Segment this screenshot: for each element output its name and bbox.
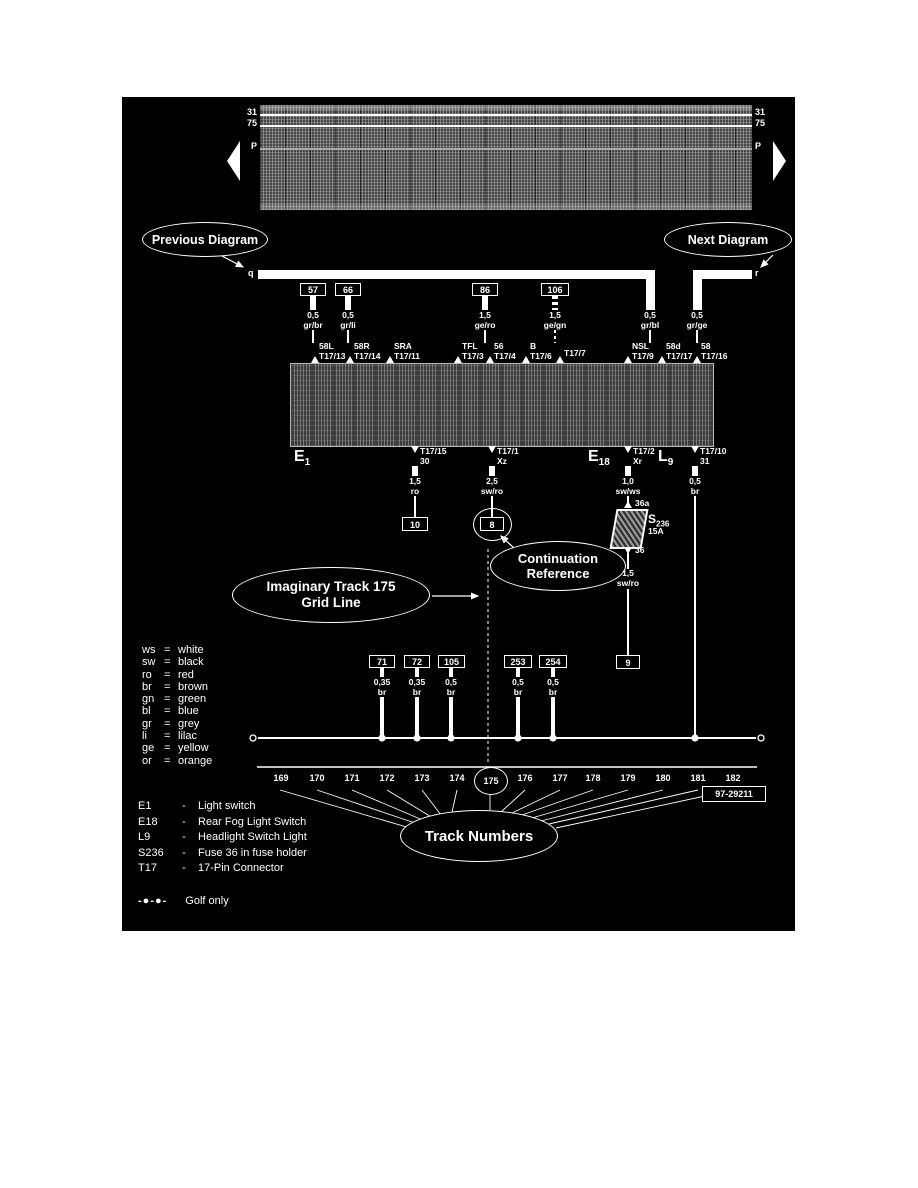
pin-arrow-icon [624, 356, 632, 363]
legend-row: ge=yellow [142, 742, 212, 754]
wire-color: gr/bl [628, 321, 672, 331]
pin-arrow-icon [488, 446, 496, 453]
legend-row: T17-17-Pin Connector [138, 861, 307, 877]
pin-label: 58RT17/14 [354, 342, 380, 361]
bus-right-end-letter: r [755, 268, 759, 278]
legend-row: sw=black [142, 656, 212, 668]
continuation-ref-box: 8 [480, 517, 504, 531]
continuation-ref-box: 254 [539, 655, 567, 668]
pin-arrow-icon [386, 356, 394, 363]
callout-imaginary-track: Imaginary Track 175Grid Line [232, 567, 430, 623]
wire-stub [415, 668, 419, 677]
track-number: 177 [547, 773, 573, 784]
legend-row: ro=red [142, 669, 212, 681]
wire-label: 0,5gr/li [326, 311, 370, 330]
wire-label: 0,5gr/bl [628, 311, 672, 330]
wire-to-ground [415, 697, 419, 738]
pin-label: 58dT17/17 [666, 342, 692, 361]
bus-bar-right-drop [693, 270, 702, 310]
band-right-label-31: 31 [755, 107, 771, 118]
legend-row: ws=white [142, 644, 212, 656]
wire-stub [625, 466, 631, 476]
wire-label: 0,5gr/ge [675, 311, 719, 330]
track-number-175-circled: 175 [474, 767, 508, 795]
next-diagram-arrow [761, 255, 773, 267]
continuation-ref-box: 10 [402, 517, 428, 531]
component-label-l9: L9 [658, 449, 673, 471]
wiring-diagram-panel: 31 75 P 31 75 P q r 57 0,5gr/br 66 0,5gr… [122, 97, 795, 931]
wire-lead [414, 496, 416, 517]
pin-label: T17/1031 [700, 447, 726, 466]
wire-to-ground [551, 697, 555, 738]
wire-stub [380, 668, 384, 677]
previous-diagram-arrow [222, 256, 243, 267]
wire-lead [627, 589, 629, 655]
wire-stub [310, 296, 316, 310]
track-number: 174 [444, 773, 470, 784]
track-number: 176 [512, 773, 538, 784]
pin-label: 58T17/16 [701, 342, 727, 361]
callout-track-numbers: Track Numbers [400, 810, 558, 862]
wire-color: ge/gn [533, 321, 577, 331]
legend-row: S236-Fuse 36 in fuse holder [138, 846, 307, 862]
ground-rail [250, 735, 764, 741]
continuation-ref-box: 9 [616, 655, 640, 669]
pin-arrow-icon [346, 356, 354, 363]
track-number: 181 [685, 773, 711, 784]
wire-label: 1,5ge/gn [533, 311, 577, 330]
wire-color: ge/ro [463, 321, 507, 331]
wire-label: 1,5ro [393, 477, 437, 496]
track-number: 169 [268, 773, 294, 784]
wire-to-ground [516, 697, 520, 738]
document-number-box: 97-29211 [702, 786, 766, 802]
track-number: 182 [720, 773, 746, 784]
wire-stub-golf-only [552, 296, 558, 310]
fuse-pin-top-label: 36a [635, 499, 649, 508]
wire-lead [696, 330, 698, 343]
wire-label: 2,5sw/ro [470, 477, 514, 496]
band-wire-75 [260, 125, 752, 127]
pin-label: T17/1530 [420, 447, 446, 466]
wire-color-legend: ws=white sw=black ro=red br=brown gn=gre… [142, 644, 212, 767]
pin-label: SRAT17/11 [394, 342, 420, 361]
legend-row: L9-Headlight Switch Light [138, 830, 307, 846]
pin-arrow-icon [486, 356, 494, 363]
wire-color: gr/ge [675, 321, 719, 331]
wire-lead-golf-only [554, 330, 556, 343]
pin-arrow-icon [522, 356, 530, 363]
band-strip-top [260, 105, 752, 110]
band-left-label-p: P [241, 141, 257, 152]
fuse-s236-symbol [609, 509, 648, 549]
fuse-rating: 15A [648, 527, 664, 536]
wire-stub [692, 466, 698, 476]
callout-previous-diagram: Previous Diagram [142, 222, 268, 257]
wire-lead [627, 553, 629, 569]
pin-label: NSLT17/9 [632, 342, 654, 361]
legend-row: gr=grey [142, 718, 212, 730]
pin-arrow-icon [454, 356, 462, 363]
ground-connection-dots [378, 734, 698, 741]
band-left-label-75: 75 [241, 118, 257, 129]
pin-label: T17/1Xz [497, 447, 519, 466]
wire-label: 1,5sw/ro [606, 569, 650, 588]
legend-row: li=lilac [142, 730, 212, 742]
track-number: 171 [339, 773, 365, 784]
track-number: 170 [304, 773, 330, 784]
legend-row: br=brown [142, 681, 212, 693]
pin-arrow-icon [311, 356, 319, 363]
continuation-ref-box: 106 [541, 283, 569, 296]
track-number: 178 [580, 773, 606, 784]
band-left-label-31: 31 [241, 107, 257, 118]
wire-stub [412, 466, 418, 476]
continuation-ref-box: 105 [438, 655, 465, 668]
track-number: 180 [650, 773, 676, 784]
legend-row: or=orange [142, 755, 212, 767]
legend-row: bl=blue [142, 705, 212, 717]
wire-label: 1,0sw/ws [606, 477, 650, 496]
band-right-label-p: P [755, 141, 771, 152]
continuation-ref-box: 253 [504, 655, 532, 668]
band-strip-bottom [260, 204, 752, 210]
continuation-ref-box: 66 [335, 283, 361, 296]
wire-stub [551, 668, 555, 677]
component-label-e18: E18 [588, 449, 610, 471]
pin-arrow-icon [556, 356, 564, 363]
diagram-overview-band [260, 105, 752, 210]
wire-stub [345, 296, 351, 310]
wire-stub [482, 296, 488, 310]
wire-stub [489, 466, 495, 476]
band-wire-31 [260, 114, 752, 116]
pin-label: 58LT17/13 [319, 342, 345, 361]
light-switch-block [290, 363, 714, 447]
wire-label: 1,5ge/ro [463, 311, 507, 330]
pin-arrow-icon [658, 356, 666, 363]
track-number: 179 [615, 773, 641, 784]
continuation-ref-box: 72 [404, 655, 430, 668]
pin-label: TFLT17/3 [462, 342, 484, 361]
track-number: 172 [374, 773, 400, 784]
legend-row: E1-Light switch [138, 799, 307, 815]
pin-label: T17/2Xr [633, 447, 655, 466]
component-label-e1: E1 [294, 449, 310, 471]
legend-row: E18-Rear Fog Light Switch [138, 815, 307, 831]
bus-bar-left [258, 270, 655, 279]
pin-label: BT17/6 [530, 342, 552, 361]
bus-left-end-letter: q [248, 268, 254, 278]
wire-stub [516, 668, 520, 677]
golf-only-dash-dot-swatch: -●-●- [138, 895, 167, 908]
band-wire-p [260, 148, 752, 150]
wire-to-ground [380, 697, 384, 738]
legend-row: gn=green [142, 693, 212, 705]
scanned-manual-page: 31 75 P 31 75 P q r 57 0,5gr/br 66 0,5gr… [0, 0, 918, 1188]
golf-only-label: Golf only [185, 895, 228, 908]
pin-label: 56T17/4 [494, 342, 516, 361]
component-legend: E1-Light switch E18-Rear Fog Light Switc… [138, 799, 307, 877]
wire-label: 0,5br [429, 678, 473, 697]
callout-next-diagram: Next Diagram [664, 222, 792, 257]
golf-only-note: -●-●- Golf only [138, 895, 229, 908]
next-page-arrow-icon [773, 141, 786, 181]
pin-arrow-icon [691, 446, 699, 453]
continuation-ref-box: 57 [300, 283, 326, 296]
pin-arrow-icon [411, 446, 419, 453]
wire-to-ground [449, 697, 453, 738]
wire-stub [449, 668, 453, 677]
band-right-label-75: 75 [755, 118, 771, 129]
wire-lead-to-ground [694, 496, 696, 737]
wire-label: 0,5br [673, 477, 717, 496]
continuation-ref-box: 71 [369, 655, 395, 668]
continuation-ref-box: 86 [472, 283, 498, 296]
pin-arrow-icon [624, 446, 632, 453]
wire-color: gr/li [326, 321, 370, 331]
pin-arrow-icon [693, 356, 701, 363]
track-number: 173 [409, 773, 435, 784]
bus-bar-left-drop [646, 270, 655, 310]
fuse-pin-arrow-icon [624, 501, 632, 508]
wire-label: 0,5br [531, 678, 575, 697]
wire-lead [312, 330, 314, 343]
fuse-pin-bottom-label: 36 [635, 546, 644, 555]
previous-page-arrow-icon [227, 141, 240, 181]
wire-lead [347, 330, 349, 343]
wire-lead [484, 330, 486, 343]
pin-label: T17/7 [564, 349, 586, 359]
